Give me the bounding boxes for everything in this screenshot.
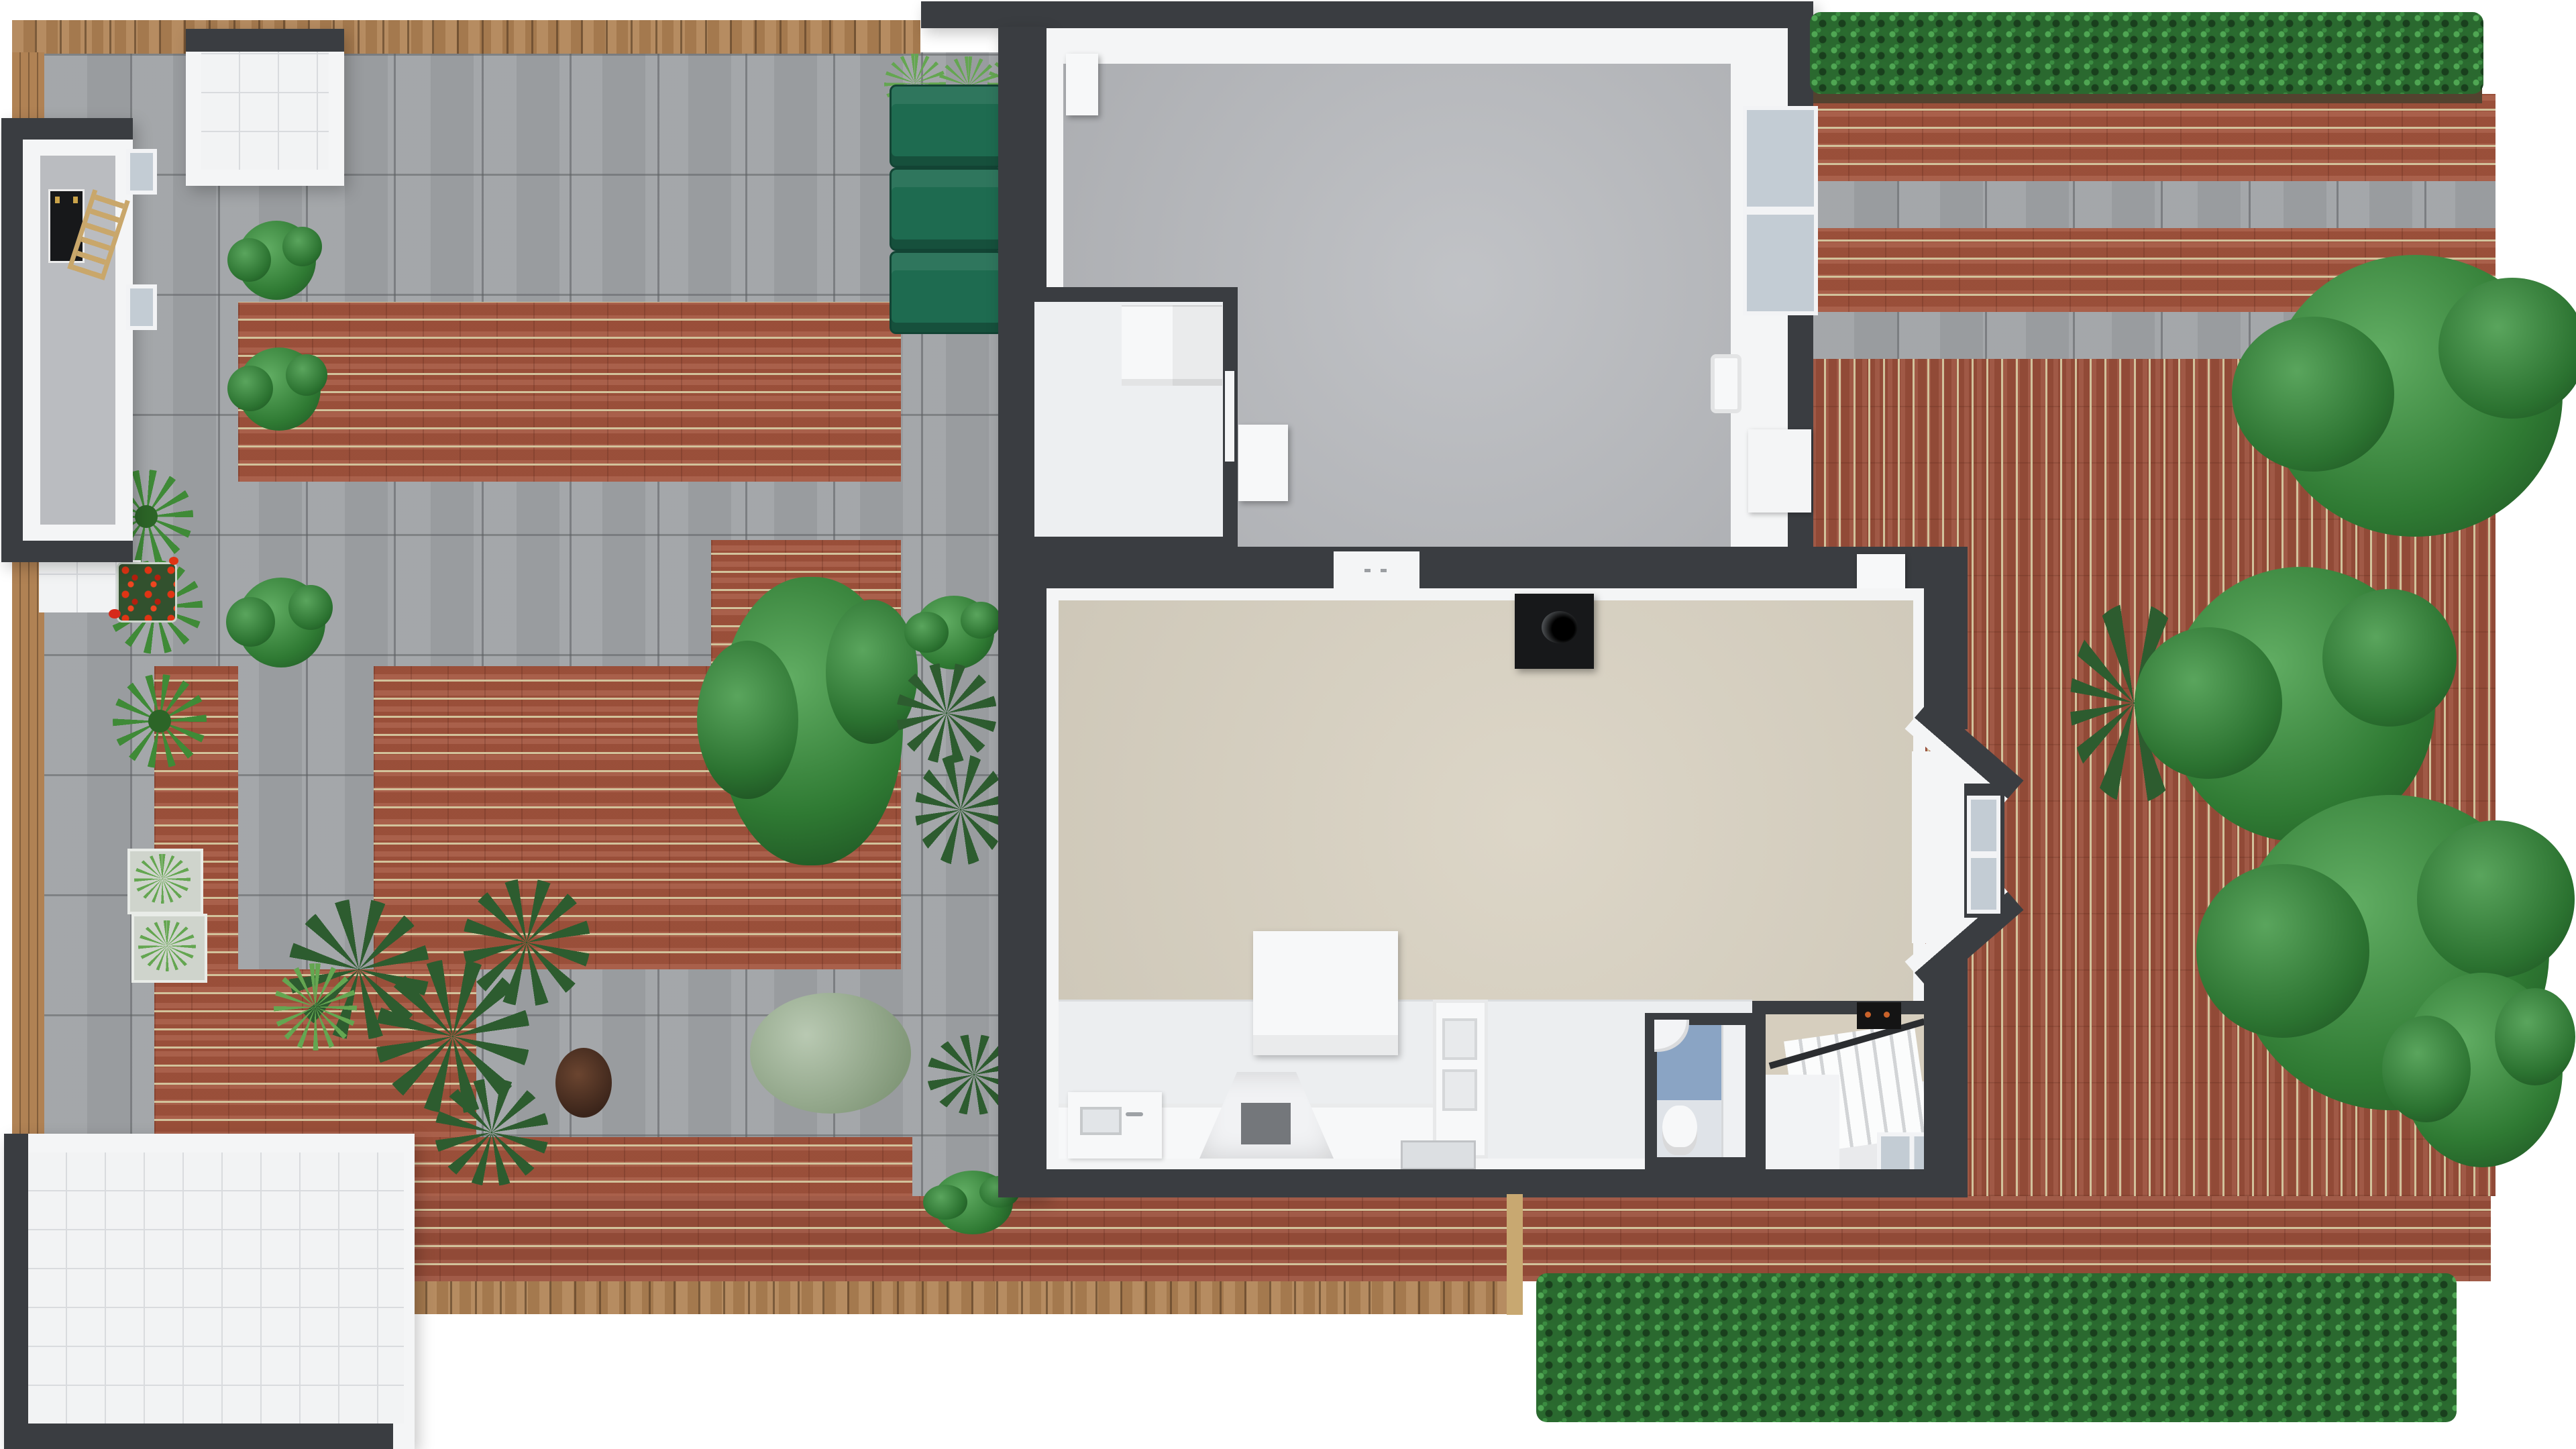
- garage-window: [1743, 106, 1818, 315]
- door-handle: [1364, 569, 1371, 572]
- brick-band-below-house: [402, 1196, 2491, 1281]
- hedge-top-right: [1810, 12, 2483, 94]
- garage-side-door: [1748, 429, 1811, 513]
- mat-handle: [55, 197, 60, 203]
- red-flower-spill: [109, 609, 121, 619]
- kitchen-sink-unit: [1068, 1092, 1162, 1159]
- wheelie-bin-3: [890, 251, 1004, 334]
- hedge-bottom-right: [1536, 1273, 2457, 1422]
- shed-window-2: [126, 284, 157, 330]
- freezer: [1238, 425, 1288, 501]
- plant-pot: [555, 1048, 612, 1118]
- garage-top-wall: [921, 1, 1813, 28]
- patio-structure: [4, 1134, 415, 1449]
- bathroom: [1645, 1013, 1758, 1169]
- wall-bush-3: [915, 754, 1006, 865]
- house-bottom-wall: [998, 1169, 1968, 1197]
- oven-knob: [1865, 1012, 1871, 1018]
- mat-handle: [73, 197, 78, 203]
- washing-machine: [1122, 305, 1222, 386]
- shed: [1, 118, 133, 562]
- right-tree-4: [2402, 973, 2563, 1167]
- toilet: [1662, 1106, 1697, 1155]
- right-tree-1: [2267, 255, 2563, 537]
- living-top-wall: [998, 547, 1968, 588]
- hall-floor-recess: [1401, 1140, 1476, 1170]
- canopy-top-wall: [186, 29, 344, 52]
- palm-plant-4: [435, 1079, 549, 1186]
- courtyard-paver-strip-1: [1811, 181, 2495, 228]
- patio-tree-small-1: [237, 221, 316, 300]
- cabinet-panel: [1442, 1069, 1477, 1111]
- built-in-oven: [1857, 1002, 1901, 1029]
- bay-wall-front: [1964, 784, 2004, 918]
- kitchen-sink: [1080, 1107, 1122, 1135]
- hood-vent: [1241, 1103, 1291, 1144]
- canopy-store: [186, 29, 344, 186]
- trellis-planter-2: [131, 914, 207, 983]
- wood-stove: [1515, 594, 1594, 669]
- house-left-wall: [998, 27, 1046, 1197]
- garden-gate-post: [1507, 1194, 1523, 1315]
- wall-bush-2: [896, 663, 997, 763]
- spiky-plant-3: [113, 674, 207, 768]
- bathroom-vanity: [1721, 1025, 1746, 1157]
- patio-floor: [28, 1152, 404, 1424]
- living-right-wall-lower: [1924, 958, 1968, 1197]
- sage-bush: [750, 993, 911, 1114]
- red-flower-spill: [169, 557, 178, 565]
- utility-room: [1020, 287, 1238, 549]
- wheelie-bin-2: [890, 168, 1004, 251]
- patio-tree-small-3: [237, 578, 325, 667]
- fern-plant-light: [274, 963, 357, 1051]
- living-top-door: [1334, 551, 1419, 590]
- courtyard-brick-strip-1: [1811, 94, 2495, 181]
- palm-plant-3: [463, 879, 590, 1006]
- water-heater: [1066, 54, 1098, 115]
- oven-knob: [1884, 1012, 1890, 1018]
- utility-sliding-door: [1225, 371, 1234, 462]
- shed-window-1: [126, 149, 157, 195]
- planter-greenery: [138, 920, 196, 971]
- deck-top: [12, 20, 920, 54]
- patio-tree-small-2: [237, 347, 321, 431]
- trellis-planter-1: [127, 849, 203, 914]
- red-flower-planter: [117, 562, 177, 623]
- canopy-floor: [201, 52, 329, 170]
- brick-patio-upper: [238, 302, 901, 482]
- stair-landing: [1766, 1075, 1839, 1172]
- door-handle: [1381, 569, 1387, 572]
- patio-bottom-wall: [4, 1424, 393, 1449]
- garage-wall-sink: [1711, 354, 1741, 413]
- wheelie-bin-1: [890, 85, 1004, 168]
- cabinet-panel: [1442, 1018, 1477, 1060]
- stove-flue: [1542, 611, 1578, 643]
- floor-plan-render: [0, 0, 2576, 1449]
- patio-tree-large: [719, 577, 903, 865]
- kitchen-island: [1253, 931, 1398, 1055]
- wall-bush-1: [914, 596, 994, 669]
- bay-window-glass: [1967, 796, 2000, 914]
- kitchen-tall-cabinet: [1433, 1000, 1488, 1159]
- kitchen-faucet: [1126, 1112, 1143, 1116]
- planter-greenery: [134, 854, 191, 904]
- patio-left-wall: [4, 1134, 28, 1449]
